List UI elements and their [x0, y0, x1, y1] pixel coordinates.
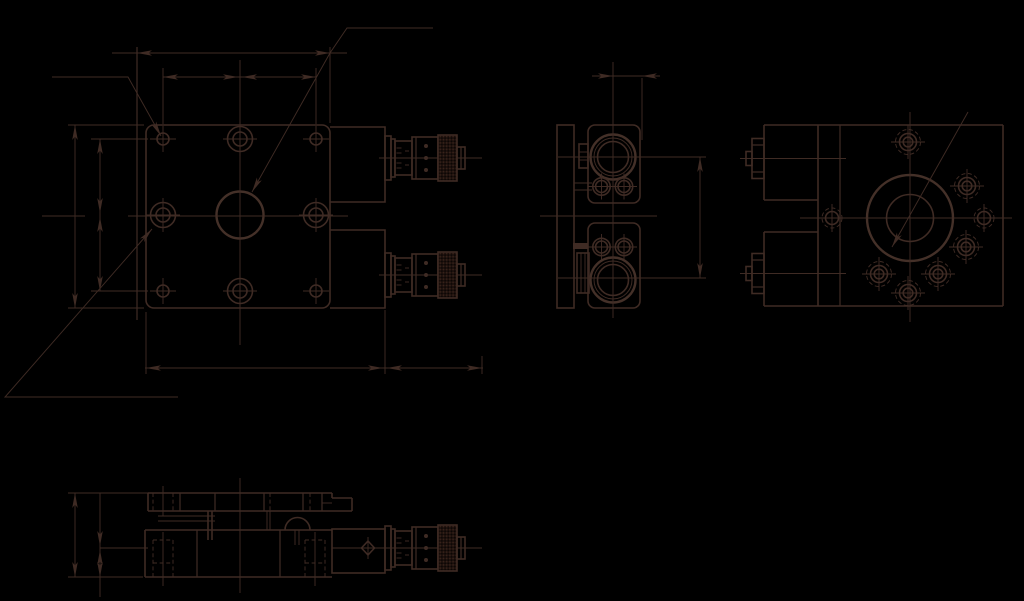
clamp-column: [557, 125, 574, 308]
bolt-hole: [891, 276, 925, 310]
bolt-hole: [970, 204, 998, 232]
side-view: [540, 62, 706, 318]
bolt-hole: [950, 169, 984, 203]
drawing-canvas: [0, 0, 1024, 601]
front-leader-lines: [5, 28, 433, 397]
clamp-block-bottom: [573, 223, 640, 308]
front-dimensions: [72, 50, 483, 371]
bolt-hole: [862, 257, 896, 291]
front-view: [5, 28, 483, 397]
micrometer-block-top: [330, 127, 385, 202]
micrometer-head-top: [379, 135, 482, 181]
front-hole-grid: [146, 122, 333, 308]
mounting-hole: [150, 126, 176, 152]
mounting-hole: [303, 278, 329, 304]
micrometer-block-bottom: [330, 230, 385, 308]
bolt-hole: [921, 257, 955, 291]
base-plate-section: [145, 530, 332, 586]
rear-bolt-holes: [818, 125, 998, 310]
bolt-hole: [949, 230, 983, 264]
mounting-hole: [150, 278, 176, 304]
counterbore-hole: [146, 198, 180, 232]
carriage-ways: [158, 511, 310, 545]
front-plate-outline: [137, 47, 385, 320]
bottom-dimensions: [68, 493, 190, 597]
micrometer-head-side: [100, 525, 482, 571]
counterbore-hole: [299, 198, 333, 232]
side-centerlines: [540, 62, 706, 318]
rear-view: [740, 112, 1012, 322]
technical-drawing: [0, 0, 1024, 601]
bolt-hole: [891, 125, 925, 159]
rear-outline: [764, 125, 1003, 306]
clamp-block-top: [574, 125, 640, 203]
bolt-hole: [818, 204, 846, 232]
micrometer-mount: [332, 529, 385, 573]
mounting-hole: [303, 126, 329, 152]
top-plate-section: [148, 486, 352, 516]
bottom-view: [68, 478, 482, 597]
micrometer-head-bottom: [379, 252, 482, 298]
